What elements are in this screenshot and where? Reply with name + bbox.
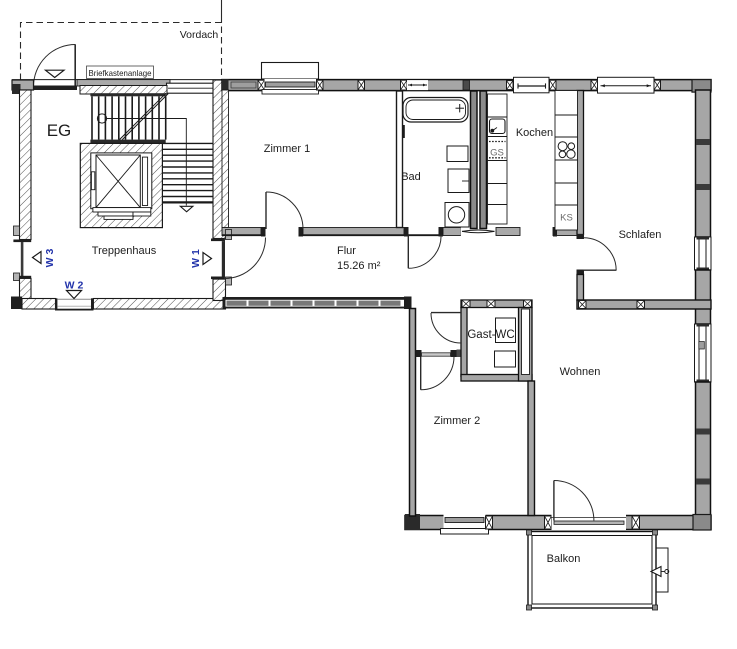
svg-text:Balkon: Balkon [547, 553, 581, 565]
svg-text:W 1: W 1 [190, 249, 202, 268]
svg-text:15.26 m²: 15.26 m² [337, 260, 381, 272]
svg-text:Kochen: Kochen [516, 127, 553, 139]
svg-text:Treppenhaus: Treppenhaus [92, 245, 157, 257]
svg-text:Schlafen: Schlafen [619, 229, 662, 241]
svg-text:KS: KS [560, 213, 573, 224]
svg-text:W 2: W 2 [65, 280, 84, 292]
svg-text:Wohnen: Wohnen [560, 366, 601, 378]
svg-text:Bad: Bad [401, 171, 421, 183]
svg-text:Zimmer 2: Zimmer 2 [434, 415, 480, 427]
svg-text:Briefkastenanlage: Briefkastenanlage [89, 68, 152, 78]
svg-text:Vordach: Vordach [180, 29, 219, 41]
svg-text:GS: GS [490, 148, 504, 159]
svg-text:EG: EG [47, 121, 72, 140]
svg-text:Gast-WC: Gast-WC [467, 329, 514, 341]
svg-text:W 3: W 3 [44, 249, 56, 268]
svg-text:Flur: Flur [337, 245, 356, 257]
svg-text:Zimmer 1: Zimmer 1 [264, 143, 310, 155]
